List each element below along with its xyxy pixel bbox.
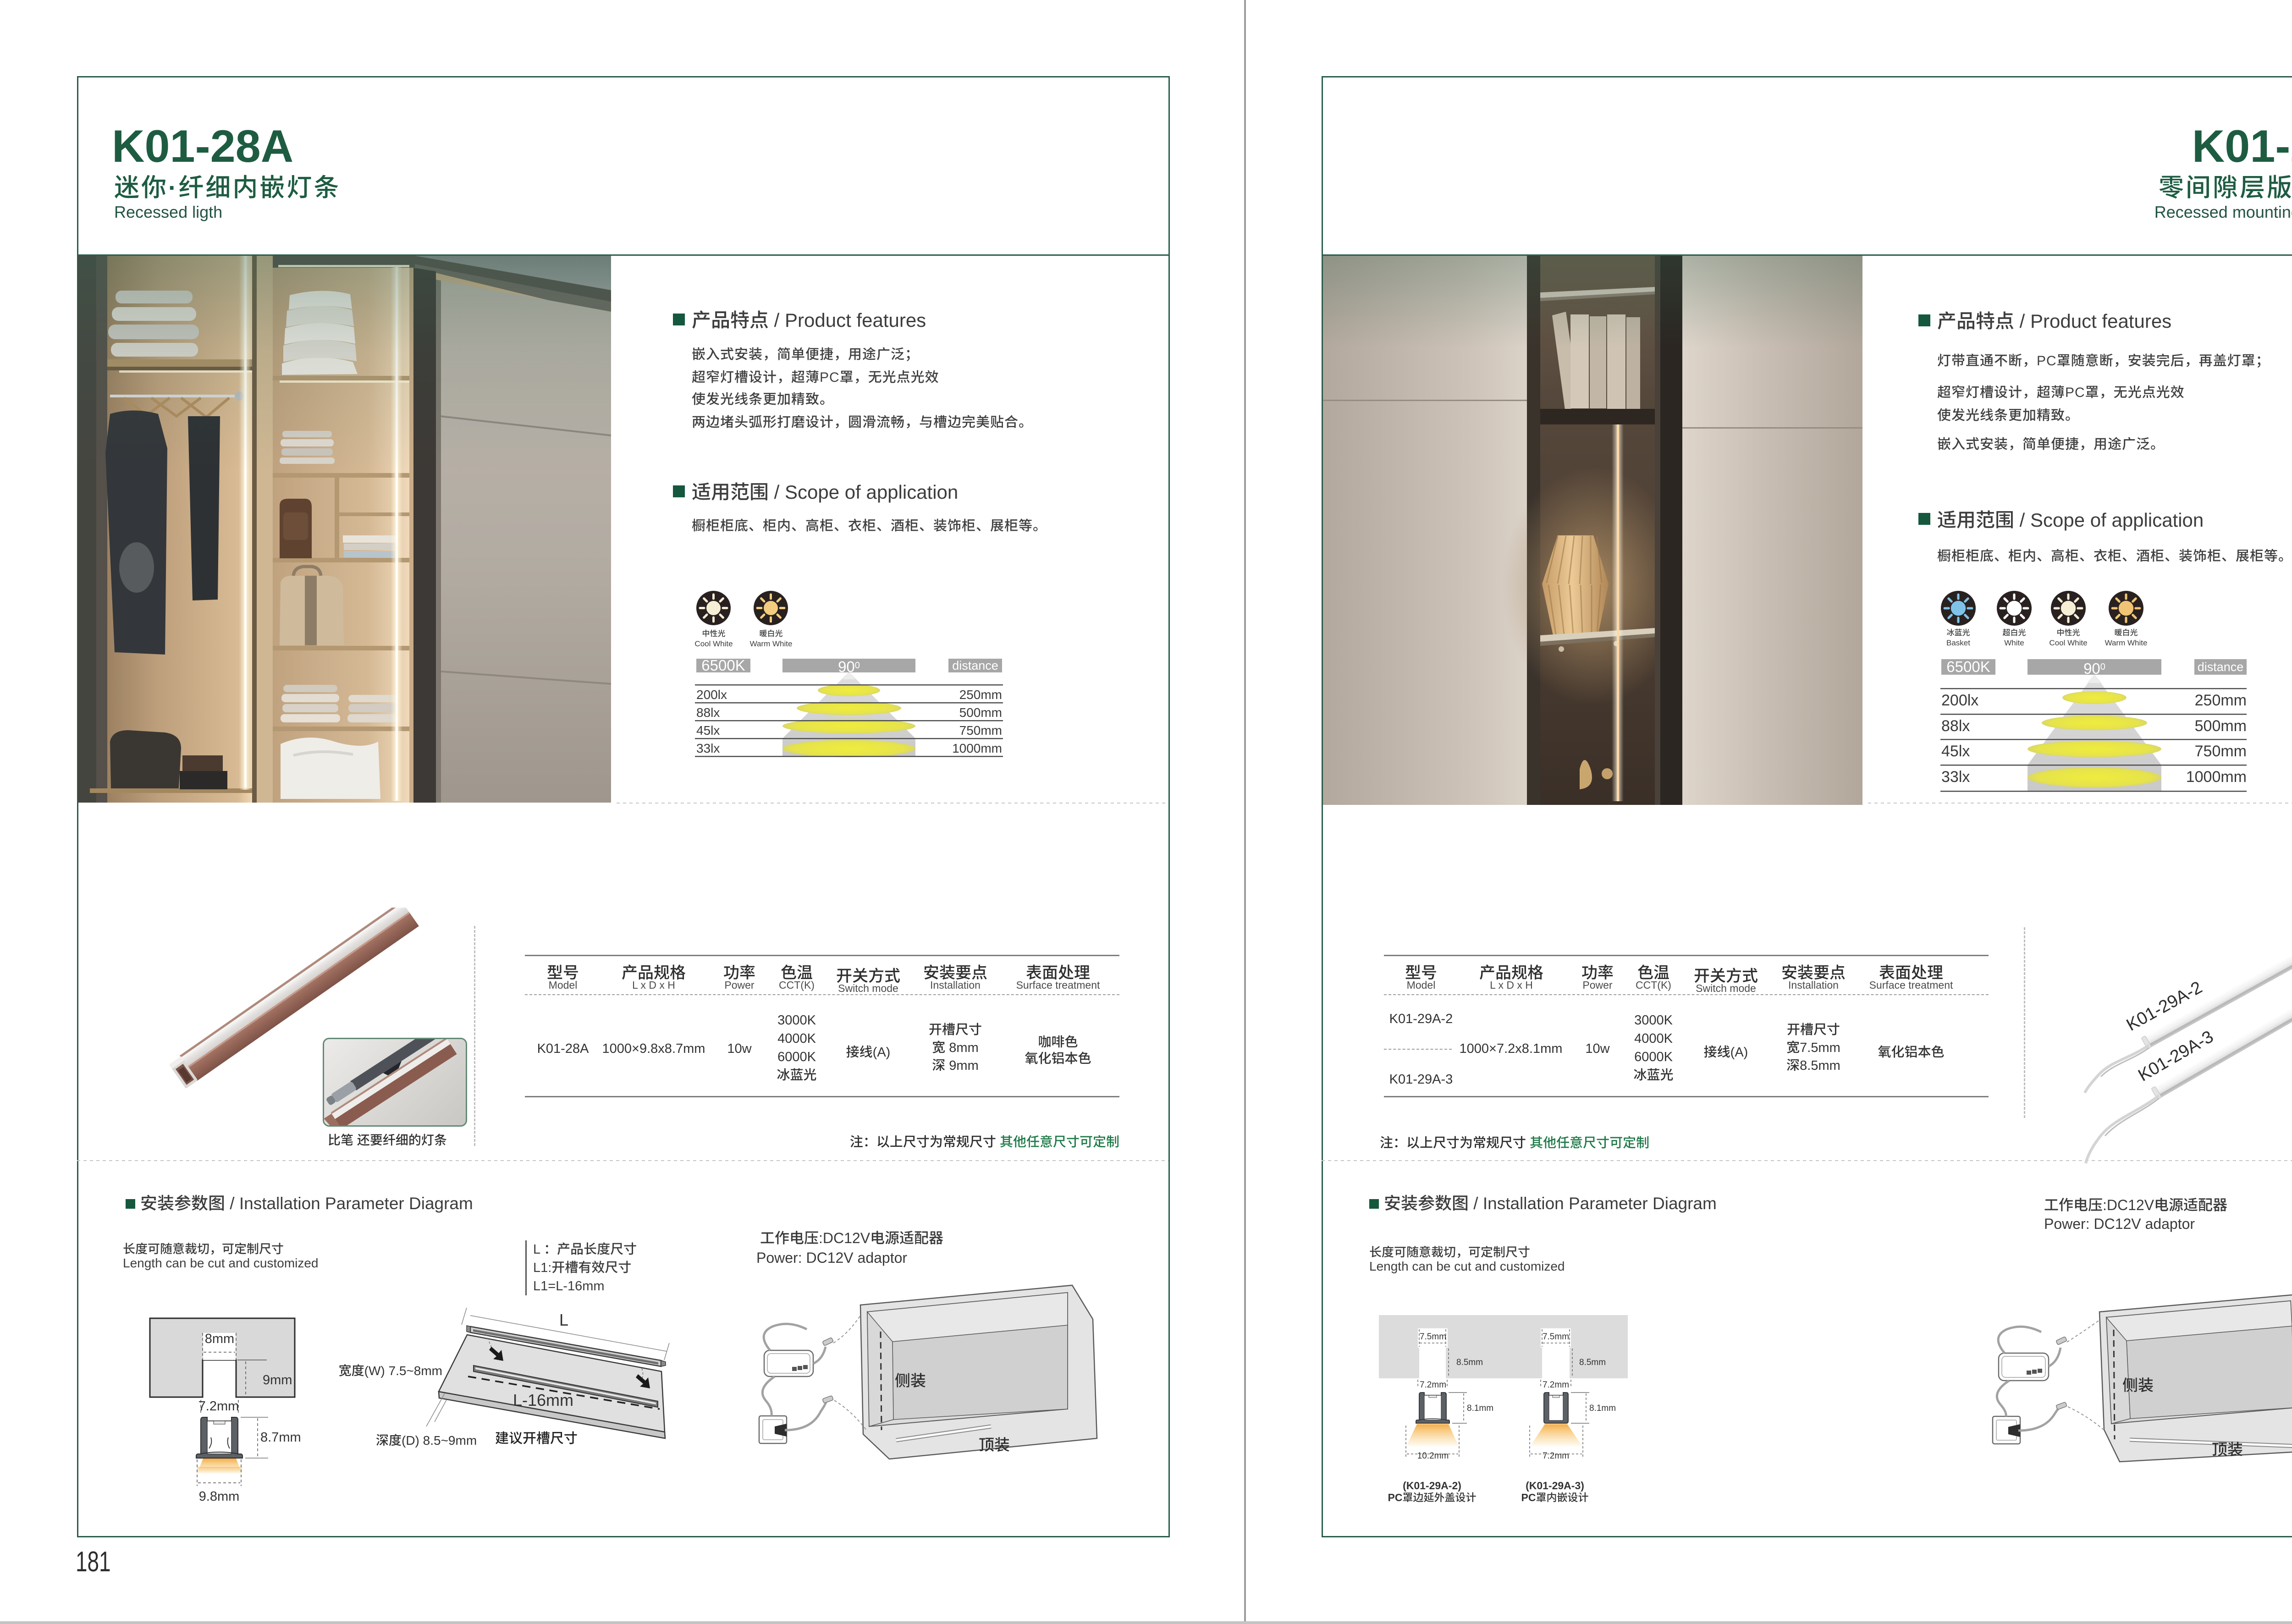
svg-text:7.2mm: 7.2mm [198,1399,239,1414]
svg-text:8.1mm: 8.1mm [1467,1404,1493,1413]
svg-text:顶装: 顶装 [979,1437,1010,1454]
svg-text:L: L [559,1310,568,1329]
svg-text:侧装: 侧装 [2122,1377,2154,1394]
svg-text:9mm: 9mm [263,1373,292,1387]
svg-text:7.5mm: 7.5mm [1420,1332,1446,1342]
svg-text:宽度(W) 7.5~8mm: 宽度(W) 7.5~8mm [339,1364,442,1378]
svg-text:7.2mm: 7.2mm [1543,1380,1569,1390]
svg-text:8.5mm: 8.5mm [1579,1358,1606,1367]
svg-text:建议开槽尺寸: 建议开槽尺寸 [495,1431,578,1446]
svg-text:深度(D) 8.5~9mm: 深度(D) 8.5~9mm [376,1433,477,1448]
svg-text:L-16mm: L-16mm [513,1391,573,1409]
svg-text:8mm: 8mm [205,1332,234,1346]
svg-text:顶装: 顶装 [2212,1441,2243,1459]
svg-text:7.2mm: 7.2mm [1543,1451,1569,1461]
svg-text:8.7mm: 8.7mm [260,1430,301,1445]
svg-text:8.1mm: 8.1mm [1589,1404,1616,1413]
svg-text:10.2mm: 10.2mm [1417,1451,1449,1461]
svg-text:7.5mm: 7.5mm [1543,1332,1569,1342]
svg-text:8.5mm: 8.5mm [1456,1358,1483,1367]
svg-text:侧装: 侧装 [895,1372,926,1390]
svg-text:9.8mm: 9.8mm [199,1489,240,1504]
svg-text:7.2mm: 7.2mm [1420,1380,1446,1390]
